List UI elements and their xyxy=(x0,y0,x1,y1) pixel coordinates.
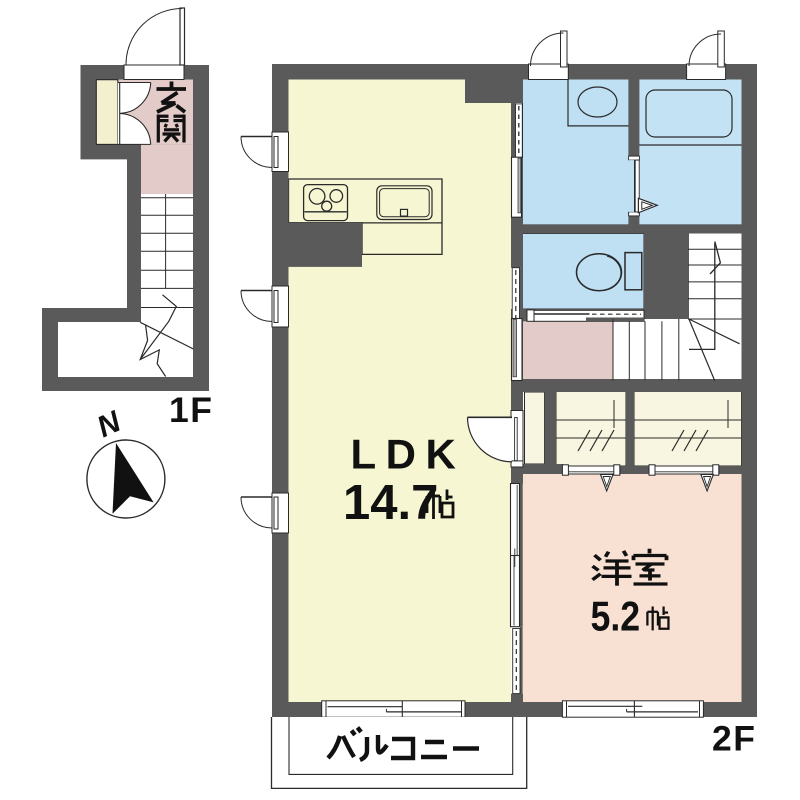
svg-text:14.7: 14.7 xyxy=(343,476,438,530)
svg-text:2F: 2F xyxy=(712,719,756,759)
svg-text:5.2: 5.2 xyxy=(591,594,641,640)
svg-text:LDK: LDK xyxy=(351,431,466,478)
svg-text:1F: 1F xyxy=(169,390,213,430)
